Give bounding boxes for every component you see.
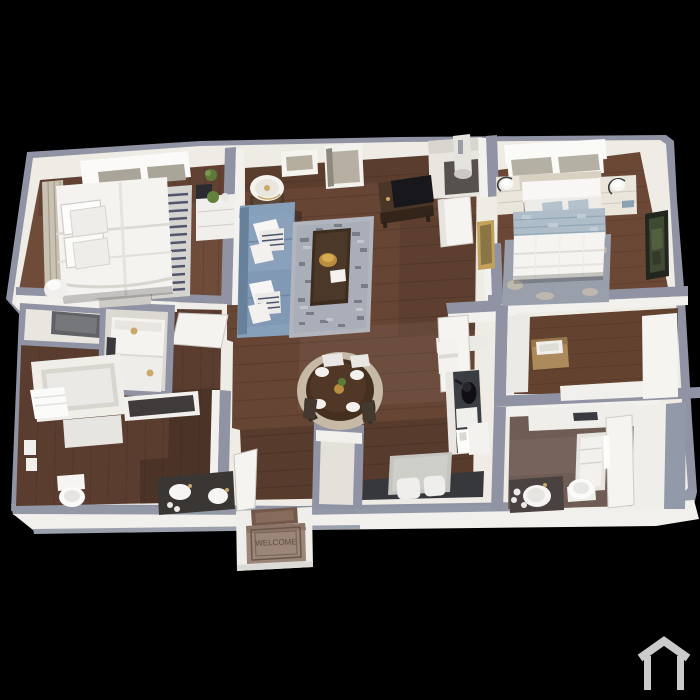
svg-text:WELCOME: WELCOME <box>255 537 297 547</box>
